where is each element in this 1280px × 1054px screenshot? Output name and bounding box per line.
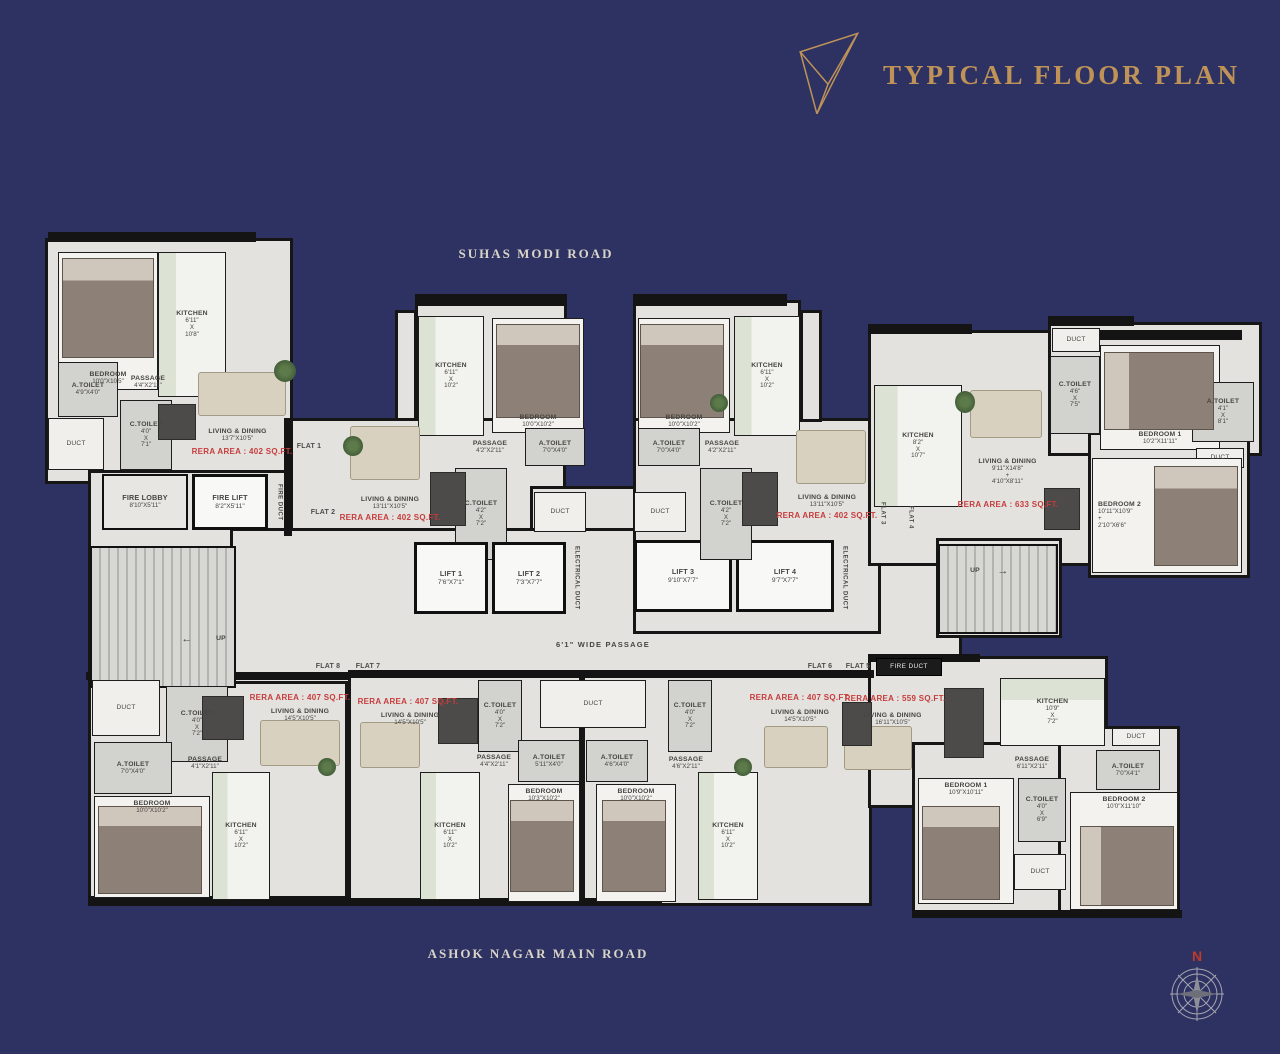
- f8-rera: RERA AREA : 407 SQ.FT.: [240, 692, 360, 704]
- f3-a-toilet-dims: 7'0"X4'0": [657, 448, 682, 455]
- corridor-label-label: 6'1" WIDE PASSAGE: [556, 641, 650, 650]
- f7-a-toilet: A.TOILET5'11"X4'0": [518, 740, 580, 782]
- electrical-duct-left: ELECTRICAL DUCT: [568, 540, 584, 616]
- f5-duct-a: DUCT: [1112, 728, 1160, 746]
- fire-lift-label: FIRE LIFT: [212, 494, 247, 502]
- furniture-plant: [955, 391, 975, 413]
- building-slab: [800, 310, 822, 422]
- f2-duct: DUCT: [534, 492, 586, 532]
- furniture-sofa: [764, 726, 828, 768]
- furniture-bed: [98, 806, 202, 894]
- furniture-bed: [922, 806, 1000, 900]
- furniture-sofa: [796, 430, 866, 484]
- flat8-tag: FLAT 8: [310, 662, 346, 672]
- f5-duct-a-label: DUCT: [1126, 733, 1145, 741]
- page-title: TYPICAL FLOOR PLAN: [883, 60, 1240, 91]
- wall-segment: [868, 324, 972, 334]
- f5-passage-dims: 6'11"X2'11": [1017, 764, 1048, 771]
- f2-c-toilet-dims: 4'2" X 7'2": [476, 508, 486, 529]
- f4-duct-right-label: DUCT: [1210, 454, 1229, 462]
- furniture-table: [202, 696, 244, 740]
- furniture-plant: [274, 360, 296, 382]
- lift-3-dims: 9'10"X7'7": [668, 577, 698, 584]
- fire-lobby: FIRE LOBBY8'10"X5'11": [102, 474, 188, 530]
- furniture-bed: [510, 800, 574, 892]
- corridor-label: 6'1" WIDE PASSAGE: [538, 638, 668, 652]
- furniture-sofa: [970, 390, 1042, 438]
- f1-a-toilet-dims: 4'9"X4'0": [76, 390, 101, 397]
- f6-rera-label: RERA AREA : 407 SQ.FT.: [750, 693, 851, 702]
- f6-bedroom-dims: 10'0"X10'2": [620, 796, 652, 803]
- f8-bedroom-dims: 10'0"X10'2": [136, 808, 168, 815]
- f4-a-toilet-dims: 4'1" X 8'1": [1218, 406, 1228, 427]
- lift-4-label: LIFT 4: [774, 568, 796, 576]
- lift-1-label: LIFT 1: [440, 570, 462, 578]
- lift-2-dims: 7'3"X7'7": [516, 579, 542, 586]
- f6-passage-dims: 4'6"X2'11": [672, 764, 700, 771]
- f6-passage: PASSAGE4'6"X2'11": [656, 752, 716, 774]
- electrical-duct-left-label: ELECTRICAL DUCT: [572, 546, 579, 610]
- f7-a-toilet-dims: 5'11"X4'0": [535, 762, 563, 769]
- f6-a-toilet-dims: 4'6"X4'0": [605, 762, 630, 769]
- f2-kitchen: KITCHEN6'11" X 10'2": [418, 316, 484, 436]
- stairs-left-arrow: ←: [178, 632, 196, 646]
- f3-c-toilet-dims: 4'2" X 7'2": [721, 508, 731, 529]
- furniture-sofa: [350, 426, 420, 480]
- floor-plan-poster: TYPICAL FLOOR PLAN SUHAS MODI ROAD ASHOK…: [0, 0, 1280, 1054]
- f6-c-toilet-dims: 4'0" X 7'2": [685, 710, 695, 731]
- wall-segment: [912, 910, 1182, 918]
- lift-4-dims: 9'7"X7'7": [772, 577, 798, 584]
- fire-lobby-dims: 8'10"X5'11": [129, 503, 160, 510]
- f3-duct-label: DUCT: [650, 508, 669, 516]
- lift-1: LIFT 17'6"X7'1": [414, 542, 488, 614]
- stairs-left: [90, 546, 236, 688]
- stairs-right: [938, 544, 1058, 634]
- stairs-right-arrow-label: →: [997, 565, 1008, 578]
- flat5-tag: FLAT 5: [840, 662, 876, 672]
- f4-bedroom-1-dims: 10'2"X11'11": [1143, 439, 1177, 446]
- f5-living-label-dims: 16'11"X10'5": [875, 720, 910, 727]
- furniture-table: [842, 702, 872, 746]
- f3-rera: RERA AREA : 402 SQ.FT.: [772, 510, 882, 522]
- f1-kitchen-dims: 6'11" X 10'8": [185, 318, 199, 339]
- f4-bedroom-2-dims: 10'11"X10'9" + 2'10"X6'6": [1098, 509, 1133, 530]
- stairs-right-up-label: UP: [970, 567, 980, 575]
- lift-1-dims: 7'6"X7'1": [438, 579, 464, 586]
- lift-2-label: LIFT 2: [518, 570, 540, 578]
- f8-passage-dims: 4'1"X2'11": [191, 764, 219, 771]
- f5-bedroom-2-dims: 10'0"X11'10": [1107, 804, 1142, 811]
- f7-c-toilet-dims: 4'0" X 7'2": [495, 710, 505, 731]
- f8-duct-label: DUCT: [116, 704, 135, 712]
- f4-duct-top-label: DUCT: [1066, 336, 1085, 344]
- brand-header: TYPICAL FLOOR PLAN: [791, 28, 1240, 122]
- lift-2: LIFT 27'3"X7'7": [492, 542, 566, 614]
- furniture-plant: [318, 758, 336, 776]
- road-label-bottom: ASHOK NAGAR MAIN ROAD: [408, 946, 668, 962]
- f7-rera-label: RERA AREA : 407 SQ.FT.: [358, 697, 459, 706]
- f1-duct: DUCT: [48, 418, 104, 470]
- f3-kitchen-dims: 6'11" X 10'2": [760, 370, 774, 391]
- compass-rose-icon: [1169, 966, 1225, 1022]
- wall-segment: [1048, 316, 1134, 326]
- flat8-tag-label: FLAT 8: [316, 663, 340, 671]
- f6-c-toilet: C.TOILET4'0" X 7'2": [668, 680, 712, 752]
- f8-living-label-dims: 14'5"X10'5": [284, 716, 316, 723]
- f4-c-toilet-dims: 4'6" X 7'5": [1070, 389, 1080, 410]
- f8-c-toilet-dims: 4'0" X 7'2": [192, 718, 202, 739]
- f3-a-toilet: A.TOILET7'0"X4'0": [638, 428, 700, 466]
- f1-rera-label: RERA AREA : 402 SQ.FT.: [192, 447, 293, 456]
- f3-living-label-dims: 13'11"X10'5": [810, 502, 845, 509]
- f7-living-label-dims: 14'5"X10'5": [394, 720, 426, 727]
- f8-a-toilet-dims: 7'0"X4'0": [121, 769, 146, 776]
- f1-passage-dims: 4'4"X2'11": [134, 383, 162, 390]
- fire-lift-dims: 8'2"X5'11": [215, 503, 244, 510]
- f2-a-toilet-dims: 7'0"X4'0": [543, 448, 568, 455]
- f3-living-label: LIVING & DINING13'11"X10'5": [772, 490, 882, 512]
- furniture-table: [944, 688, 984, 758]
- flat2-tag: FLAT 2: [306, 508, 340, 518]
- f7-bedroom-dims: 10'3"X10'2": [528, 796, 560, 803]
- furniture-bed: [1154, 466, 1238, 566]
- f7-rera: RERA AREA : 407 SQ.FT.: [348, 696, 468, 708]
- stairs-left-arrow-label: ←: [181, 633, 192, 646]
- wall-segment: [415, 294, 567, 306]
- brand-logo-icon: [791, 28, 865, 122]
- f6-living-label-dims: 14'5"X10'5": [784, 717, 816, 724]
- stairs-left-up-label: UP: [216, 635, 226, 643]
- f2-rera-label: RERA AREA : 402 SQ.FT.: [340, 513, 441, 522]
- furniture-plant: [343, 436, 363, 456]
- flat1-tag: FLAT 1: [292, 442, 326, 452]
- duct-bottom-center-label: DUCT: [583, 700, 602, 708]
- f3-passage: PASSAGE4'2"X2'11": [694, 436, 750, 458]
- f6-rera: RERA AREA : 407 SQ.FT.: [740, 692, 860, 704]
- f5-c-toilet: C.TOILET4'0" X 6'9": [1018, 778, 1066, 842]
- f2-living-label-dims: 13'11"X10'5": [373, 504, 408, 511]
- f7-passage-dims: 4'4"X2'11": [480, 762, 508, 769]
- f1-living-label-dims: 13'7"X10'5": [222, 436, 254, 443]
- f3-bedroom-dims: 10'0"X10'2": [668, 422, 700, 429]
- flat2-tag-label: FLAT 2: [311, 509, 335, 517]
- flat4-tag-label: FLAT 4: [906, 506, 913, 529]
- stairs-left-up: UP: [208, 632, 234, 646]
- f8-kitchen: KITCHEN6'11" X 10'2": [212, 772, 270, 900]
- furniture-sofa: [360, 722, 420, 768]
- furniture-plant: [734, 758, 752, 776]
- stairs-right-arrow: →: [994, 564, 1012, 578]
- f4-kitchen-dims: 8'2" X 10'7": [911, 440, 925, 461]
- f6-kitchen-dims: 6'11" X 10'2": [721, 830, 735, 851]
- furniture-table: [742, 472, 778, 526]
- f5-passage: PASSAGE6'11"X2'11": [1002, 752, 1062, 774]
- furniture-bed: [62, 258, 154, 358]
- furniture-bed: [602, 800, 666, 892]
- furniture-bed: [1080, 826, 1174, 906]
- f7-passage: PASSAGE4'4"X2'11": [465, 750, 523, 772]
- furniture-bed: [496, 324, 580, 418]
- flat7-tag-label: FLAT 7: [356, 663, 380, 671]
- f5-kitchen-dims: 10'9" X 7'2": [1046, 706, 1060, 727]
- furniture-bed: [1104, 352, 1214, 430]
- fire-lift: FIRE LIFT8'2"X5'11": [192, 474, 268, 530]
- f5-rera-label: RERA AREA : 559 SQ.FT.: [845, 694, 946, 703]
- flat5-tag-label: FLAT 5: [846, 663, 870, 671]
- f1-living-label: LIVING & DINING13'7"X10'5": [185, 424, 290, 446]
- electrical-duct-right-label: ELECTRICAL DUCT: [840, 546, 847, 610]
- compass: N: [1168, 948, 1226, 1027]
- fire-duct-left-label: FIRE DUCT: [275, 484, 282, 521]
- f2-rera: RERA AREA : 402 SQ.FT.: [335, 512, 445, 524]
- f2-a-toilet: A.TOILET7'0"X4'0": [525, 428, 585, 466]
- f2-passage: PASSAGE4'2"X2'11": [462, 436, 518, 458]
- f5-bedroom-1-dims: 10'9"X10'11": [949, 790, 984, 797]
- f3-duct: DUCT: [634, 492, 686, 532]
- f1-c-toilet-dims: 4'0" X 7'1": [141, 429, 151, 450]
- building-slab: [395, 310, 417, 422]
- f4-duct-top: DUCT: [1052, 328, 1100, 352]
- f1-duct-label: DUCT: [66, 440, 85, 448]
- f4-c-toilet: C.TOILET4'6" X 7'5": [1050, 356, 1100, 434]
- fire-duct-left: FIRE DUCT: [272, 476, 286, 528]
- f5-c-toilet-dims: 4'0" X 6'9": [1037, 804, 1047, 825]
- f5-duct-b: DUCT: [1014, 854, 1066, 890]
- f2-duct-label: DUCT: [550, 508, 569, 516]
- fire-duct-bottom-label: FIRE DUCT: [890, 663, 928, 671]
- f3-passage-dims: 4'2"X2'11": [708, 448, 736, 455]
- compass-north-label: N: [1168, 948, 1226, 964]
- f8-kitchen-dims: 6'11" X 10'2": [234, 830, 248, 851]
- f3-rera-label: RERA AREA : 402 SQ.FT.: [777, 511, 878, 520]
- f7-kitchen: KITCHEN6'11" X 10'2": [420, 772, 480, 900]
- wall-segment: [1092, 330, 1242, 340]
- duct-bottom-center: DUCT: [540, 680, 646, 728]
- wall-segment: [48, 232, 256, 242]
- flat7-tag: FLAT 7: [350, 662, 386, 672]
- flat1-tag-label: FLAT 1: [297, 443, 321, 451]
- f4-rera-label: RERA AREA : 633 SQ.FT.: [958, 500, 1059, 509]
- furniture-sofa: [198, 372, 286, 416]
- wall-segment: [633, 294, 787, 306]
- flat6-tag: FLAT 6: [802, 662, 838, 672]
- f4-living-label: LIVING & DINING9'11"X14'8" + 4'10"X8'11": [950, 452, 1065, 492]
- f8-a-toilet: A.TOILET7'0"X4'0": [94, 742, 172, 794]
- flat3-tag-label: FLAT 3: [878, 502, 885, 525]
- f5-a-toilet-dims: 7'0"X4'1": [1116, 771, 1141, 778]
- lift-3-label: LIFT 3: [672, 568, 694, 576]
- f5-kitchen: KITCHEN10'9" X 7'2": [1000, 678, 1105, 746]
- fire-duct-bottom: FIRE DUCT: [876, 658, 942, 676]
- f8-passage: PASSAGE4'1"X2'11": [176, 752, 234, 774]
- f2-bedroom-dims: 10'0"X10'2": [522, 422, 554, 429]
- stairs-right-up: UP: [962, 564, 988, 578]
- furniture-plant: [710, 394, 728, 412]
- road-label-top: SUHAS MODI ROAD: [430, 246, 642, 262]
- f1-passage: PASSAGE4'4"X2'11": [118, 370, 178, 394]
- f7-kitchen-dims: 6'11" X 10'2": [443, 830, 457, 851]
- f3-kitchen: KITCHEN6'11" X 10'2": [734, 316, 800, 436]
- f5-a-toilet: A.TOILET7'0"X4'1": [1096, 750, 1160, 790]
- f1-rera: RERA AREA : 402 SQ.FT.: [188, 446, 296, 458]
- f8-rera-label: RERA AREA : 407 SQ.FT.: [250, 693, 351, 702]
- furniture-table: [158, 404, 196, 440]
- f2-kitchen-dims: 6'11" X 10'2": [444, 370, 458, 391]
- f4-living-label-dims: 9'11"X14'8" + 4'10"X8'11": [992, 466, 1023, 487]
- f5-duct-b-label: DUCT: [1030, 868, 1049, 876]
- f2-living-label: LIVING & DINING13'11"X10'5": [335, 492, 445, 514]
- f7-c-toilet: C.TOILET4'0" X 7'2": [478, 680, 522, 752]
- f6-a-toilet: A.TOILET4'6"X4'0": [586, 740, 648, 782]
- f6-kitchen: KITCHEN6'11" X 10'2": [698, 772, 758, 900]
- electrical-duct-right: ELECTRICAL DUCT: [836, 540, 852, 616]
- f4-kitchen: KITCHEN8'2" X 10'7": [874, 385, 962, 507]
- f8-duct: DUCT: [92, 680, 160, 736]
- f2-passage-dims: 4'2"X2'11": [476, 448, 504, 455]
- flat6-tag-label: FLAT 6: [808, 663, 832, 671]
